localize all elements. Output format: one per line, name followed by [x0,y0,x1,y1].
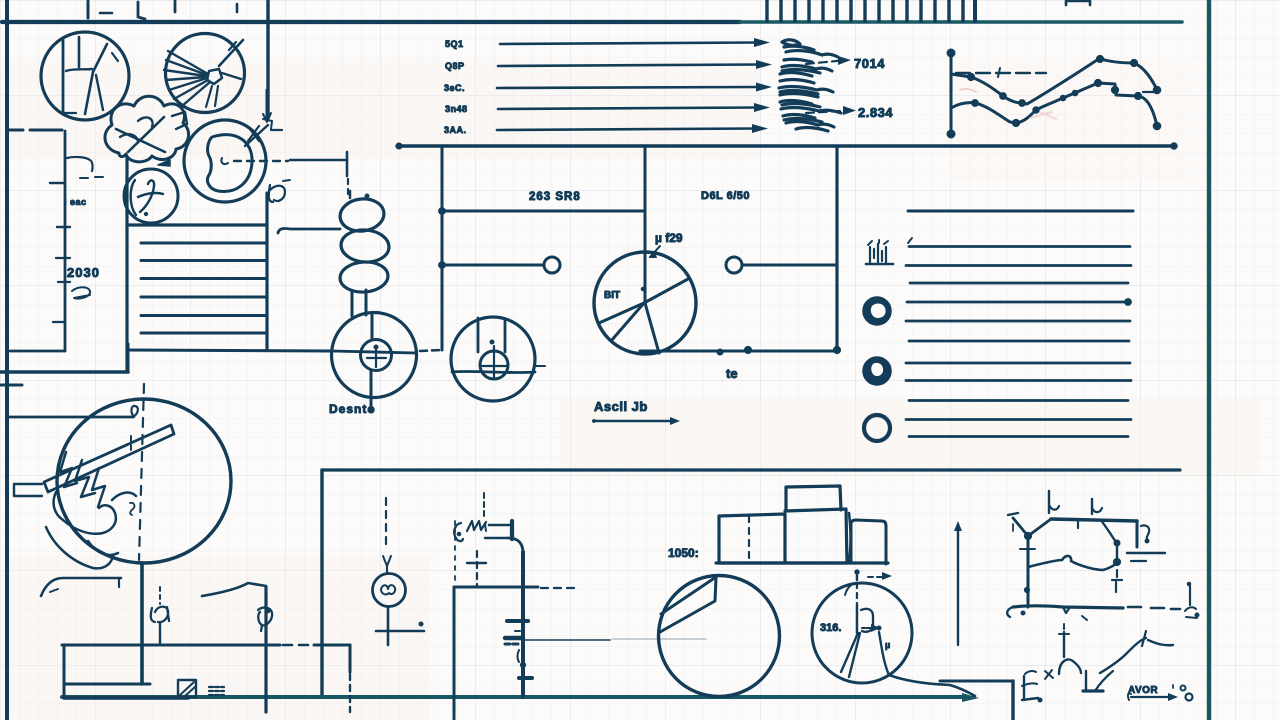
svg-text:3AA.: 3AA. [444,125,467,135]
svg-text:7014: 7014 [854,56,885,71]
svg-text:Desnto: Desnto [329,402,376,416]
svg-text:1050:: 1050: [668,546,699,560]
svg-text:AVOR: AVOR [1128,685,1158,696]
svg-text:3eC.: 3eC. [444,83,465,93]
svg-text:Ascll Jb: Ascll Jb [594,399,648,414]
svg-text:2.834: 2.834 [858,105,893,120]
svg-text:D6L 6/50: D6L 6/50 [701,190,750,202]
svg-text:i eac: i eac [64,197,87,207]
svg-text:µ f29: µ f29 [655,231,683,245]
svg-text:3n48: 3n48 [445,104,468,114]
svg-text:te: te [726,366,738,381]
svg-text:316.: 316. [820,622,841,634]
svg-text:BIT: BIT [604,290,620,301]
svg-text:5Q1: 5Q1 [445,39,464,49]
svg-text:µ: µ [885,640,890,650]
svg-text:Q8P: Q8P [445,61,465,71]
svg-text:263 SR8: 263 SR8 [529,191,581,203]
svg-text:2030: 2030 [67,265,100,280]
